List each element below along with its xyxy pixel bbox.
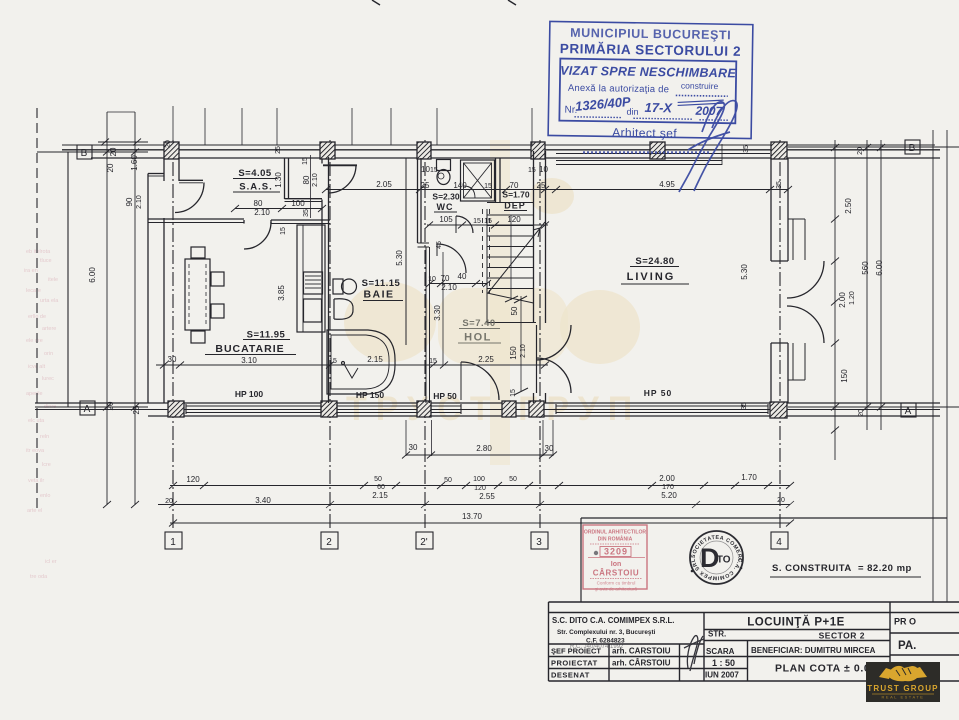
svg-text:20: 20 bbox=[777, 497, 785, 504]
svg-text:35: 35 bbox=[776, 181, 783, 189]
svg-text:Str. Complexului nr. 3, Bucure: Str. Complexului nr. 3, Bucureşti bbox=[557, 629, 656, 636]
svg-text:2.80: 2.80 bbox=[476, 444, 492, 453]
svg-text:1.30: 1.30 bbox=[274, 172, 283, 188]
svg-text:S=7.40: S=7.40 bbox=[462, 318, 495, 329]
svg-text:10: 10 bbox=[428, 276, 436, 283]
svg-text:HP 50: HP 50 bbox=[644, 388, 672, 398]
svg-text:560: 560 bbox=[861, 261, 870, 275]
svg-text:PA.: PA. bbox=[898, 640, 916, 652]
svg-text:PLAN COTA ± 0.00: PLAN COTA ± 0.00 bbox=[775, 663, 877, 675]
svg-text:VIZAT SPRE NESCHIMBARE: VIZAT SPRE NESCHIMBARE bbox=[560, 64, 736, 81]
svg-text:reln: reln bbox=[40, 434, 49, 440]
svg-text:45: 45 bbox=[436, 241, 443, 249]
svg-text:SECTOR 2: SECTOR 2 bbox=[819, 631, 865, 641]
svg-text:1.20: 1.20 bbox=[849, 291, 856, 305]
svg-text:2.05: 2.05 bbox=[376, 180, 392, 189]
svg-text:HP 100: HP 100 bbox=[235, 389, 263, 399]
svg-text:30: 30 bbox=[545, 444, 554, 453]
svg-text:2.10: 2.10 bbox=[441, 283, 457, 292]
svg-text:S.C. DITO C.A. COMIMPEX S.R.L.: S.C. DITO C.A. COMIMPEX S.R.L. bbox=[552, 616, 674, 625]
svg-text:3: 3 bbox=[536, 537, 542, 548]
svg-text:2.00: 2.00 bbox=[838, 292, 847, 308]
svg-text:Ion: Ion bbox=[611, 561, 622, 568]
svg-text:105: 105 bbox=[439, 215, 453, 224]
svg-text:lcre: lcre bbox=[42, 462, 51, 468]
svg-text:20: 20 bbox=[106, 163, 115, 172]
svg-text:25: 25 bbox=[132, 405, 141, 414]
svg-text:lurec: lurec bbox=[42, 376, 54, 382]
svg-text:enlo: enlo bbox=[40, 493, 50, 499]
svg-text:tre oda: tre oda bbox=[30, 574, 48, 580]
svg-text:1.60: 1.60 bbox=[130, 155, 139, 171]
svg-text:ira en: ira en bbox=[24, 268, 38, 274]
svg-text:20: 20 bbox=[165, 498, 173, 505]
svg-text:150: 150 bbox=[509, 346, 518, 360]
svg-text:S=24.80: S=24.80 bbox=[635, 256, 674, 267]
svg-text:90: 90 bbox=[125, 197, 134, 206]
svg-text:5.20: 5.20 bbox=[661, 491, 677, 500]
svg-text:25: 25 bbox=[275, 146, 282, 154]
svg-text:120: 120 bbox=[186, 475, 200, 484]
svg-text:ТРУСТ ГРУП: ТРУСТ ГРУП bbox=[346, 390, 641, 428]
svg-text:20: 20 bbox=[109, 147, 118, 156]
svg-text:20: 20 bbox=[106, 401, 115, 410]
svg-text:50: 50 bbox=[510, 306, 519, 315]
svg-text:PROIECTAT: PROIECTAT bbox=[551, 659, 598, 668]
svg-text:2.15: 2.15 bbox=[367, 355, 383, 364]
svg-text:2: 2 bbox=[326, 537, 332, 548]
svg-text:arte el: arte el bbox=[27, 508, 42, 514]
svg-text:35: 35 bbox=[303, 209, 310, 217]
svg-text:arh. CÂRSTOIU: arh. CÂRSTOIU bbox=[612, 659, 671, 668]
svg-text:S=4.05: S=4.05 bbox=[238, 168, 272, 179]
svg-text:DESENAT: DESENAT bbox=[551, 671, 590, 680]
svg-text:din: din bbox=[626, 107, 638, 117]
svg-text:eb itelrota: eb itelrota bbox=[26, 249, 51, 255]
svg-text:120: 120 bbox=[507, 215, 521, 224]
svg-text:2.50: 2.50 bbox=[844, 198, 853, 214]
svg-text:artere: artere bbox=[42, 326, 56, 332]
svg-text:BENEFICIAR: DUMITRU MIRCEA: BENEFICIAR: DUMITRU MIRCEA bbox=[751, 646, 876, 655]
svg-text:170: 170 bbox=[662, 484, 674, 491]
svg-text:140: 140 bbox=[453, 181, 467, 190]
svg-text:3.40: 3.40 bbox=[255, 496, 271, 505]
svg-text:3.10: 3.10 bbox=[241, 356, 257, 365]
svg-text:15: 15 bbox=[510, 389, 517, 397]
svg-text:60: 60 bbox=[377, 484, 385, 491]
svg-text:S. CONSTRUITA = 82.20 mp: S. CONSTRUITA = 82.20 mp bbox=[772, 563, 912, 574]
svg-text:HP 150: HP 150 bbox=[356, 390, 384, 400]
svg-text:SCARA: SCARA bbox=[706, 647, 735, 656]
svg-text:5.30: 5.30 bbox=[740, 264, 749, 280]
svg-text:lecare: lecare bbox=[26, 288, 41, 294]
svg-text:2.10: 2.10 bbox=[520, 344, 527, 358]
svg-text:40: 40 bbox=[458, 272, 467, 281]
svg-text:1 : 50: 1 : 50 bbox=[712, 658, 735, 668]
svg-text:LOCUINŢĂ P+1E: LOCUINŢĂ P+1E bbox=[747, 616, 845, 629]
svg-text:STR.: STR. bbox=[708, 630, 726, 639]
svg-text:80: 80 bbox=[254, 199, 263, 208]
svg-text:100: 100 bbox=[291, 199, 305, 208]
svg-text:30: 30 bbox=[168, 355, 177, 364]
svg-text:100: 100 bbox=[473, 476, 485, 483]
svg-text:itr eova: itr eova bbox=[26, 448, 45, 454]
svg-text:4.95: 4.95 bbox=[659, 180, 675, 189]
svg-text:13.70: 13.70 bbox=[462, 512, 483, 521]
svg-text:construire: construire bbox=[681, 80, 719, 91]
svg-text:LIVING: LIVING bbox=[627, 271, 676, 283]
svg-text:35: 35 bbox=[743, 145, 750, 153]
svg-text:PR O: PR O bbox=[894, 617, 916, 627]
svg-text:PRIMĂRIA SECTORULUI 2: PRIMĂRIA SECTORULUI 2 bbox=[560, 41, 742, 59]
svg-text:50: 50 bbox=[444, 477, 452, 484]
svg-text:20: 20 bbox=[858, 409, 865, 417]
svg-text:orin: orin bbox=[44, 351, 53, 357]
svg-text:veta ilr: veta ilr bbox=[28, 478, 44, 484]
svg-text:MUNICIPIUL BUCUREŞTI: MUNICIPIUL BUCUREŞTI bbox=[570, 26, 731, 43]
svg-text:2.10: 2.10 bbox=[312, 173, 319, 187]
svg-text:DEP: DEP bbox=[504, 201, 526, 211]
svg-text:S.A.S.: S.A.S. bbox=[239, 182, 272, 193]
svg-text:IUN 2007: IUN 2007 bbox=[705, 671, 739, 680]
svg-text:tluce: tluce bbox=[40, 258, 52, 264]
svg-text:1: 1 bbox=[170, 537, 176, 548]
svg-text:Conform cu timbrul: Conform cu timbrul bbox=[597, 581, 636, 586]
svg-text:2.10: 2.10 bbox=[136, 195, 143, 209]
svg-text:15: 15 bbox=[302, 157, 309, 165]
svg-text:4: 4 bbox=[776, 537, 782, 548]
svg-text:15: 15 bbox=[280, 227, 287, 235]
svg-text:S=11.95: S=11.95 bbox=[247, 330, 286, 341]
svg-text:Anexă la autorizaţia de: Anexă la autorizaţia de bbox=[568, 83, 669, 96]
svg-text:6.00: 6.00 bbox=[875, 260, 884, 276]
svg-text:S=1.70: S=1.70 bbox=[502, 190, 529, 200]
svg-text:80: 80 bbox=[302, 175, 311, 184]
svg-text:35: 35 bbox=[741, 402, 748, 410]
svg-text:15: 15 bbox=[528, 167, 536, 174]
svg-text:S=11.15: S=11.15 bbox=[362, 278, 401, 289]
svg-text:ITO: ITO bbox=[714, 555, 731, 566]
svg-text:S=2.30: S=2.30 bbox=[432, 192, 459, 202]
svg-text:HOL: HOL bbox=[464, 332, 492, 344]
svg-text:şi aviz de arhitectură: şi aviz de arhitectură bbox=[595, 587, 638, 592]
svg-text:2.15: 2.15 bbox=[372, 491, 388, 500]
svg-text:15: 15 bbox=[430, 167, 438, 174]
svg-text:20: 20 bbox=[857, 147, 864, 155]
svg-text:30: 30 bbox=[409, 443, 418, 452]
svg-text:BUCATARIE: BUCATARIE bbox=[215, 343, 284, 355]
svg-text:aperile: aperile bbox=[26, 391, 43, 397]
svg-text:ele dre: ele dre bbox=[26, 338, 43, 344]
svg-text:120: 120 bbox=[474, 485, 486, 492]
svg-text:2': 2' bbox=[420, 537, 428, 548]
svg-text:2.55: 2.55 bbox=[479, 492, 495, 501]
svg-text:icl er: icl er bbox=[45, 559, 57, 565]
svg-text:HP 50: HP 50 bbox=[433, 391, 457, 401]
svg-text:3209: 3209 bbox=[604, 547, 628, 557]
svg-text:25: 25 bbox=[421, 181, 430, 190]
svg-text:20: 20 bbox=[165, 140, 172, 148]
svg-text:150: 150 bbox=[840, 369, 849, 383]
svg-text:Arhitect şef: Arhitect şef bbox=[612, 125, 677, 140]
svg-text:2.00: 2.00 bbox=[659, 474, 675, 483]
svg-text:1.70: 1.70 bbox=[741, 473, 757, 482]
svg-text:REAL ESTATE: REAL ESTATE bbox=[882, 695, 925, 700]
svg-text:urta ela: urta ela bbox=[40, 298, 59, 304]
svg-text:DIN ROMÂNIA: DIN ROMÂNIA bbox=[598, 536, 633, 543]
svg-text:10: 10 bbox=[539, 165, 548, 174]
svg-text:17-X: 17-X bbox=[644, 100, 673, 115]
svg-text:50: 50 bbox=[374, 476, 382, 483]
svg-text:3.85: 3.85 bbox=[277, 285, 286, 301]
svg-text:ŞEF PROIECT: ŞEF PROIECT bbox=[551, 647, 601, 656]
svg-text:WC: WC bbox=[437, 202, 454, 212]
svg-text:BAIE: BAIE bbox=[363, 289, 394, 301]
svg-text:5.30: 5.30 bbox=[395, 250, 404, 266]
svg-text:50: 50 bbox=[509, 476, 517, 483]
svg-text:CÂRSTOIU: CÂRSTOIU bbox=[593, 569, 639, 578]
svg-text:70: 70 bbox=[441, 274, 450, 283]
svg-text:TRUST GROUP: TRUST GROUP bbox=[867, 684, 938, 693]
svg-text:2.25: 2.25 bbox=[478, 355, 494, 364]
svg-text:ORDINUL ARHITECTILOR: ORDINUL ARHITECTILOR bbox=[584, 530, 647, 536]
svg-text:15: 15 bbox=[484, 218, 492, 225]
svg-text:15: 15 bbox=[329, 358, 337, 365]
svg-text:3.30: 3.30 bbox=[433, 305, 442, 321]
svg-text:15: 15 bbox=[473, 218, 481, 225]
svg-text:itele: itele bbox=[48, 277, 58, 283]
svg-text:2.10: 2.10 bbox=[254, 208, 270, 217]
svg-text:15: 15 bbox=[484, 183, 492, 190]
svg-text:arh. CARSTOIU: arh. CARSTOIU bbox=[612, 647, 671, 656]
svg-text:25: 25 bbox=[537, 181, 546, 190]
svg-text:6.00: 6.00 bbox=[88, 267, 97, 283]
svg-text:15: 15 bbox=[429, 358, 437, 365]
